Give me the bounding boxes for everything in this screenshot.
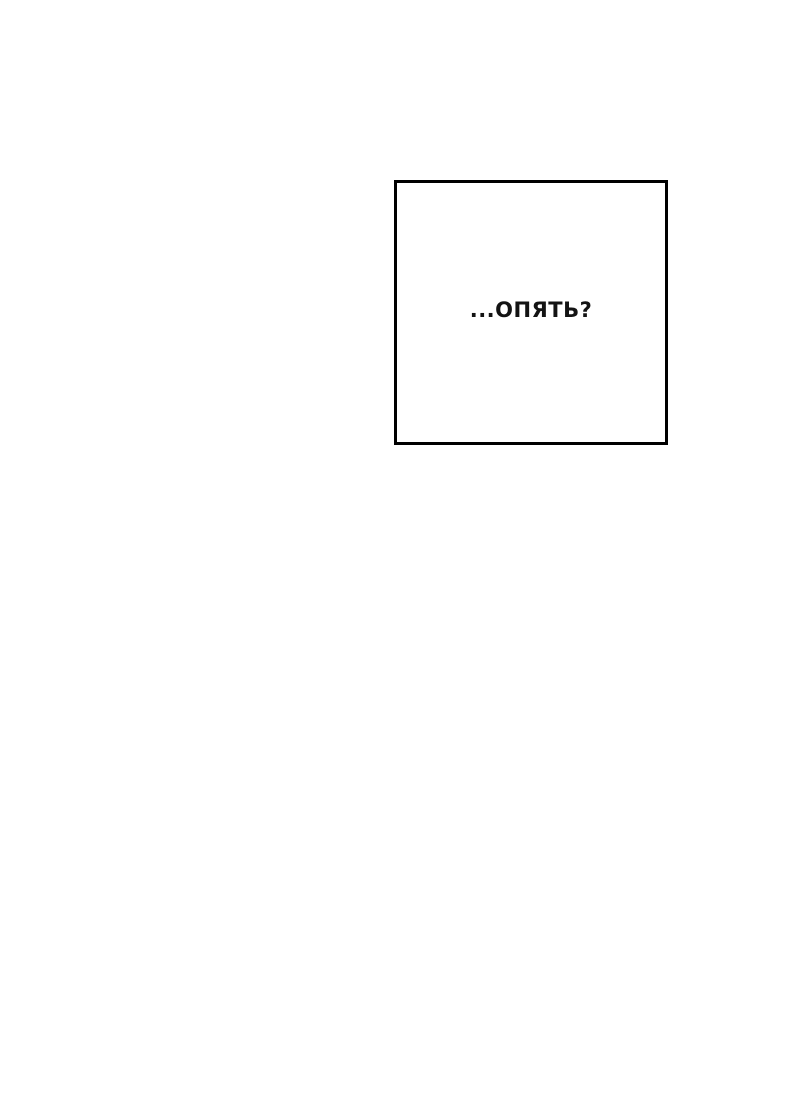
comic-page: ...ОПЯТЬ? xyxy=(0,0,800,1103)
panel-dialogue-text: ...ОПЯТЬ? xyxy=(470,298,593,322)
comic-panel: ...ОПЯТЬ? xyxy=(394,180,668,445)
